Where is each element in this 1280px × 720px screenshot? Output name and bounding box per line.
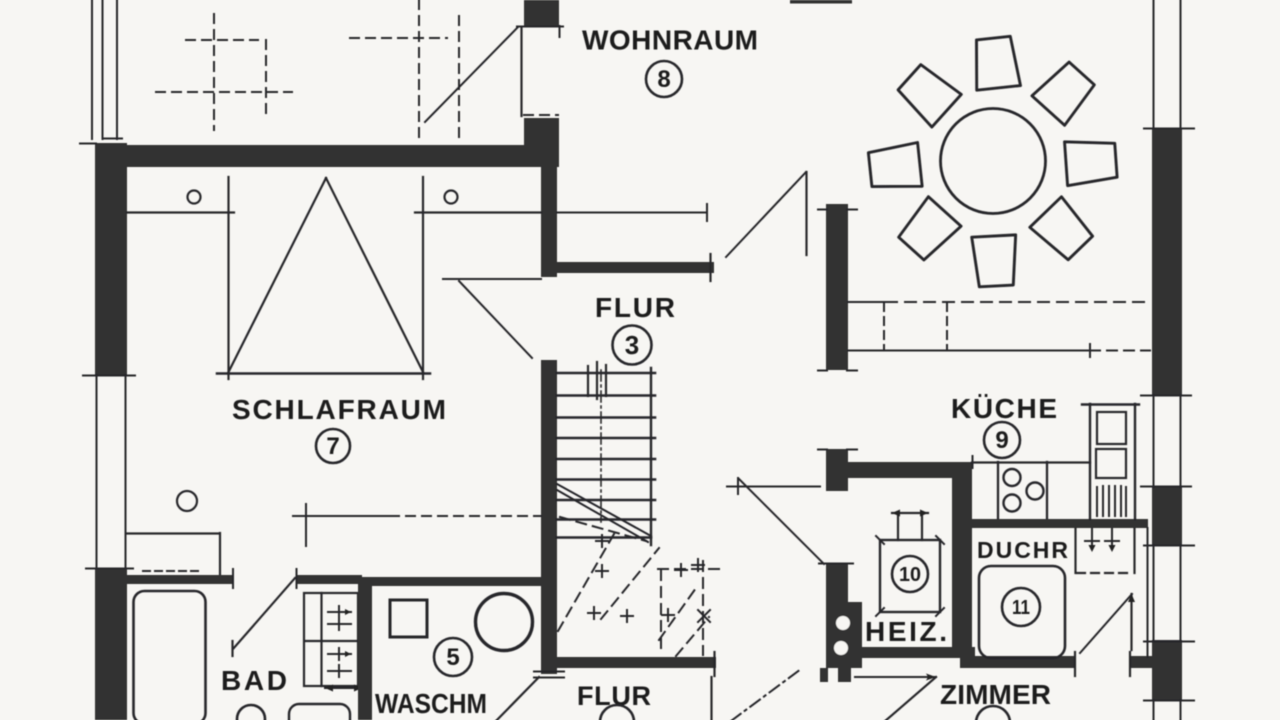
svg-text:8: 8 <box>657 66 670 93</box>
svg-text:WOHNRAUM: WOHNRAUM <box>582 25 758 56</box>
svg-text:DUCHR: DUCHR <box>977 537 1068 563</box>
svg-text:BAD: BAD <box>221 665 287 696</box>
svg-text:7: 7 <box>326 433 339 460</box>
svg-text:HEIZ.: HEIZ. <box>865 616 947 647</box>
svg-text:WASCHM: WASCHM <box>375 688 487 719</box>
svg-text:10: 10 <box>899 564 921 586</box>
svg-text:3: 3 <box>625 330 639 360</box>
svg-text:KÜCHE: KÜCHE <box>951 393 1057 424</box>
svg-text:5: 5 <box>446 644 459 671</box>
svg-text:SCHLAFRAUM: SCHLAFRAUM <box>232 394 446 425</box>
svg-text:11: 11 <box>1012 597 1030 619</box>
svg-text:FLUR: FLUR <box>595 292 675 323</box>
svg-text:9: 9 <box>995 427 1008 454</box>
